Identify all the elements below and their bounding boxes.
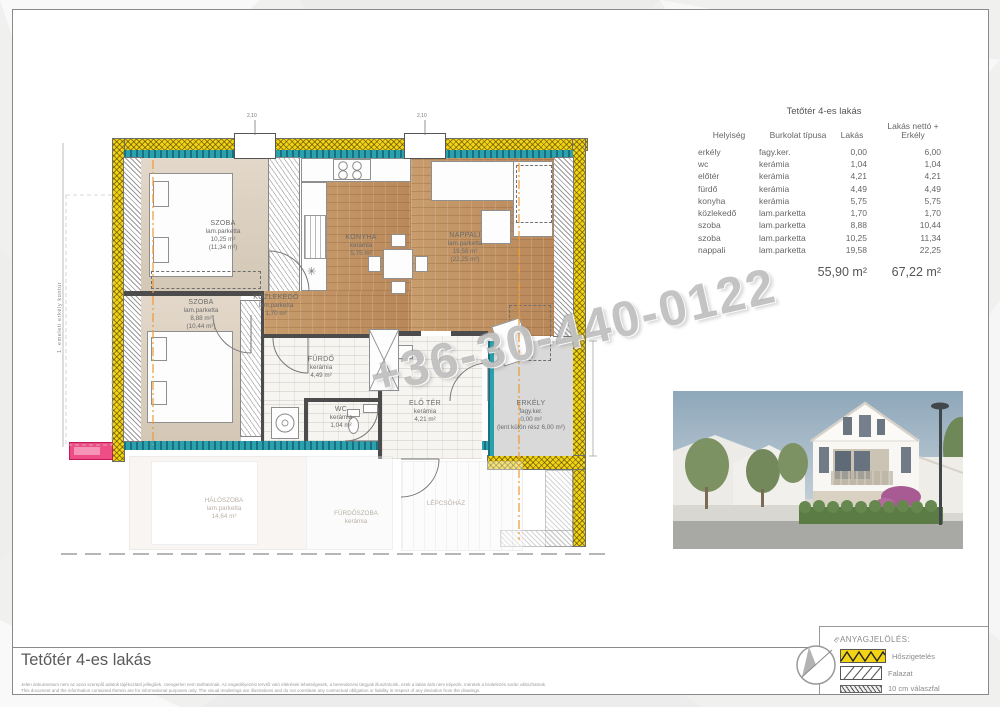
szoba1-name: SZOBA xyxy=(175,219,271,228)
row-netto: 4,21 xyxy=(867,171,941,183)
row-name: erkély xyxy=(679,147,759,159)
row-lakas: 10,25 xyxy=(837,233,867,245)
erkely-area: 0,00 m² xyxy=(487,416,575,424)
nappali-mat: lam.parketta xyxy=(417,240,513,248)
building-render-photo xyxy=(673,391,963,549)
table-row: wckerámia1,041,04 xyxy=(679,159,969,171)
row-name: szoba xyxy=(679,220,759,232)
footer-divider xyxy=(13,647,819,648)
label-erkely: ERKÉLY fagy.ker. 0,00 m² (lent külön rés… xyxy=(487,399,575,433)
stove-burners xyxy=(339,162,362,180)
table-header: Helyiség Burkolat típusa Lakás Lakás net… xyxy=(679,122,969,141)
insulation-swatch xyxy=(840,649,886,663)
row-mat: lam.parketta xyxy=(759,245,837,257)
row-lakas: 19,58 xyxy=(837,245,867,257)
nappali-name: NAPPALI xyxy=(417,231,513,240)
table-totals: 55,90 m² 67,22 m² xyxy=(679,265,969,279)
label-kozlekedo: KÖZLEKEDŐ lam.parketta 1,70 m² xyxy=(228,293,324,318)
row-netto: 22,25 xyxy=(867,245,941,257)
row-lakas: 0,00 xyxy=(837,147,867,159)
label-nappali: NAPPALI lam.parketta 19,58 m² (22,25 m²) xyxy=(417,231,513,265)
total-netto: 67,22 m² xyxy=(867,265,941,279)
legend-title: ANYAGJELÖLÉS: xyxy=(840,635,910,644)
row-lakas: 8,88 xyxy=(837,220,867,232)
label-konyha: KONYHA kerámia 5,75 m² xyxy=(313,233,409,258)
nappali-area2: (22,25 m²) xyxy=(417,256,513,264)
row-lakas: 5,75 xyxy=(837,196,867,208)
row-netto: 4,49 xyxy=(867,184,941,196)
row-mat: kerámia xyxy=(759,184,837,196)
erkely-name: ERKÉLY xyxy=(487,399,575,408)
road xyxy=(673,521,963,549)
row-name: fürdő xyxy=(679,184,759,196)
legend-item-partition: 10 cm válaszfal xyxy=(840,684,940,693)
row-mat: lam.parketta xyxy=(759,208,837,220)
masonry-swatch xyxy=(840,666,882,680)
wc-name: WC xyxy=(293,405,389,414)
eloter-name: ELŐ TÉR xyxy=(377,399,473,408)
row-lakas: 1,04 xyxy=(837,159,867,171)
area-table: Tetőtér 4-es lakás Helyiség Burkolat típ… xyxy=(679,106,969,279)
table-row: szobalam.parketta10,2511,34 xyxy=(679,233,969,245)
north-arrow-icon xyxy=(794,641,840,687)
kozlekedo-name: KÖZLEKEDŐ xyxy=(228,293,324,302)
konyha-name: KONYHA xyxy=(313,233,409,242)
nappali-area: 19,58 m² xyxy=(417,248,513,256)
row-mat: fagy.ker. xyxy=(759,147,837,159)
table-row: fürdőkerámia4,494,49 xyxy=(679,184,969,196)
row-netto: 1,70 xyxy=(867,208,941,220)
row-name: közlekedő xyxy=(679,208,759,220)
table-row: közlekedőlam.parketta1,701,70 xyxy=(679,208,969,220)
row-name: konyha xyxy=(679,196,759,208)
legend-item-insulation: Hőszigetelés xyxy=(840,649,935,663)
szoba1-mat: lam.parketta xyxy=(175,228,271,236)
row-netto: 5,75 xyxy=(867,196,941,208)
shaft-cross xyxy=(369,329,399,391)
balcony-dim-line xyxy=(589,341,597,456)
row-netto: 11,34 xyxy=(867,233,941,245)
furdo-area: 4,49 m² xyxy=(273,372,369,380)
eloter-mat: kerámia xyxy=(377,408,473,416)
lower-balcony-dashed xyxy=(66,195,112,445)
sheet-page: ✳ 2,10 2,10 1. emeleti erkély kontúr xyxy=(12,9,989,695)
row-mat: lam.parketta xyxy=(759,220,837,232)
row-name: wc xyxy=(679,159,759,171)
konyha-mat: kerámia xyxy=(313,242,409,250)
row-mat: kerámia xyxy=(759,159,837,171)
legend: É ANYAGJELÖLÉS: Hőszigetelés Falazat 10 … xyxy=(819,626,988,694)
partition-swatch xyxy=(840,685,882,693)
row-mat: kerámia xyxy=(759,171,837,183)
row-lakas: 1,70 xyxy=(837,208,867,220)
total-lakas: 55,90 m² xyxy=(679,265,867,279)
kozlekedo-area: 1,70 m² xyxy=(228,310,324,318)
row-name: szoba xyxy=(679,233,759,245)
row-name: előtér xyxy=(679,171,759,183)
szoba2-area2: (10,44 m²) xyxy=(153,323,249,331)
legend-label-masonry: Falazat xyxy=(888,669,913,678)
hedge xyxy=(799,500,943,524)
furdo-name: FÜRDŐ xyxy=(273,355,369,364)
page-title: Tetőtér 4-es lakás xyxy=(21,651,151,670)
col-burkolat: Burkolat típusa xyxy=(759,131,837,140)
wc-area: 1,04 m² xyxy=(293,422,389,430)
col-lakas: Lakás xyxy=(837,131,867,140)
row-lakas: 4,21 xyxy=(837,171,867,183)
table-title: Tetőtér 4-es lakás xyxy=(679,106,969,117)
table-row: előtérkerámia4,214,21 xyxy=(679,171,969,183)
table-row: konyhakerámia5,755,75 xyxy=(679,196,969,208)
szoba1-area: 10,25 m² xyxy=(175,236,271,244)
building-render xyxy=(673,391,963,549)
table-row: erkélyfagy.ker.0,006,00 xyxy=(679,147,969,159)
legend-item-masonry: Falazat xyxy=(840,666,913,680)
floor-plan: ✳ 2,10 2,10 1. emeleti erkély kontúr xyxy=(61,115,609,577)
col-helyiseg: Helyiség xyxy=(679,131,759,140)
row-netto: 6,00 xyxy=(867,147,941,159)
washer-drum xyxy=(276,414,294,432)
eloter-area: 4,21 m² xyxy=(377,416,473,424)
table-row: szobalam.parketta8,8810,44 xyxy=(679,220,969,232)
row-mat: kerámia xyxy=(759,196,837,208)
plan-linework xyxy=(61,115,609,577)
wc-mat: kerámia xyxy=(293,414,389,422)
table-row: nappalilam.parketta19,5822,25 xyxy=(679,245,969,257)
label-eloter: ELŐ TÉR kerámia 4,21 m² xyxy=(377,399,473,424)
erkely-note: (lent külön rész 6,00 m²) xyxy=(487,424,575,432)
row-lakas: 4,49 xyxy=(837,184,867,196)
label-wc: WC kerámia 1,04 m² xyxy=(293,405,389,430)
szoba1-area2: (11,34 m²) xyxy=(175,244,271,252)
legend-label-insulation: Hőszigetelés xyxy=(892,652,935,661)
row-netto: 1,04 xyxy=(867,159,941,171)
row-name: nappali xyxy=(679,245,759,257)
label-furdo: FÜRDŐ kerámia 4,49 m² xyxy=(273,355,369,380)
konyha-area: 5,75 m² xyxy=(313,250,409,258)
legend-label-partition: 10 cm válaszfal xyxy=(888,684,940,693)
label-szoba1: SZOBA lam.parketta 10,25 m² (11,34 m²) xyxy=(175,219,271,253)
row-netto: 10,44 xyxy=(867,220,941,232)
furdo-mat: kerámia xyxy=(273,364,369,372)
row-mat: lam.parketta xyxy=(759,233,837,245)
kozlekedo-mat: lam.parketta xyxy=(228,302,324,310)
col-netto: Lakás nettó + Erkély xyxy=(877,122,949,141)
erkely-mat: fagy.ker. xyxy=(487,408,575,416)
